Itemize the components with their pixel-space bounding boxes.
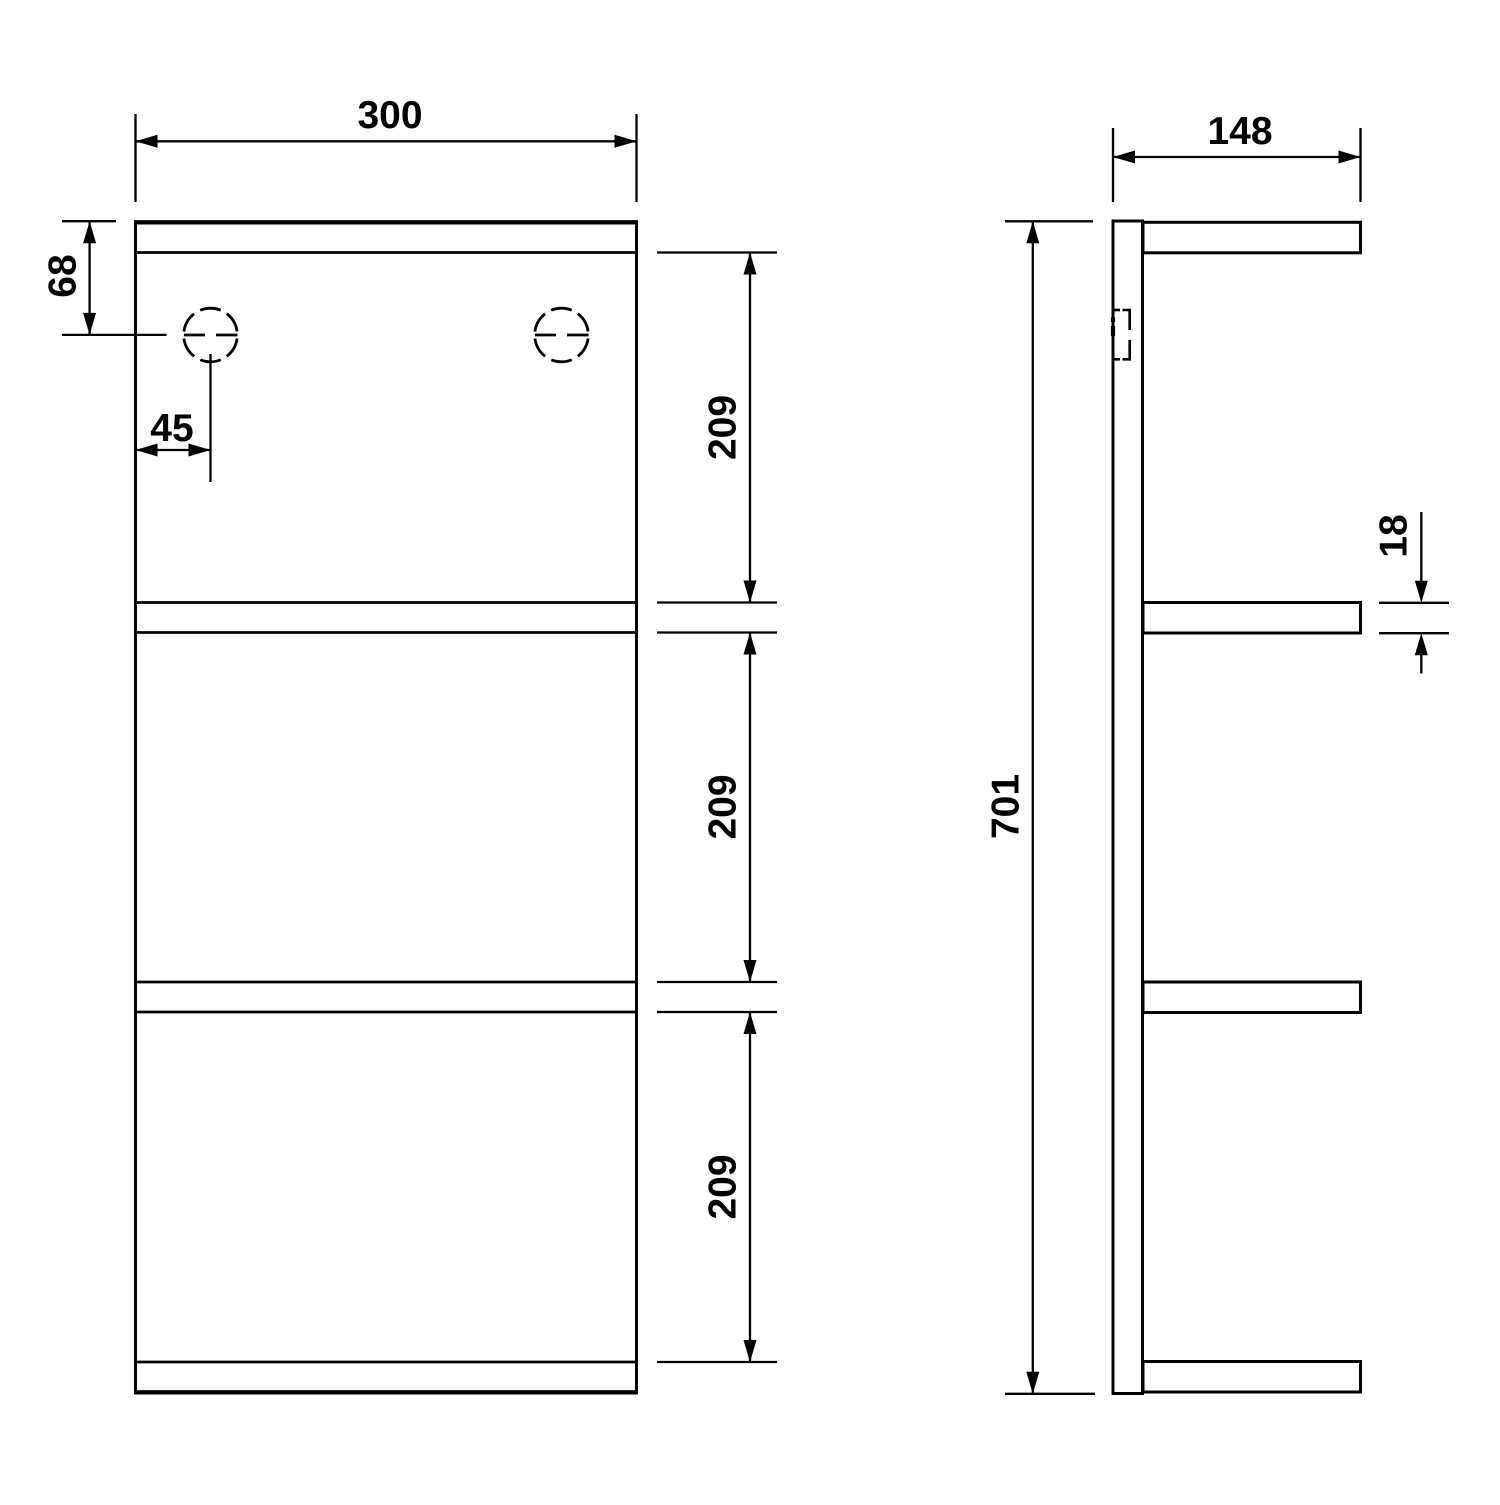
svg-text:300: 300 [357,94,422,137]
svg-text:701: 701 [985,774,1028,839]
svg-text:209: 209 [702,1154,745,1219]
svg-text:68: 68 [42,254,85,297]
svg-text:45: 45 [150,407,193,450]
svg-text:209: 209 [702,774,745,839]
svg-text:209: 209 [702,395,745,460]
svg-text:18: 18 [1373,514,1416,557]
svg-text:148: 148 [1207,110,1272,153]
